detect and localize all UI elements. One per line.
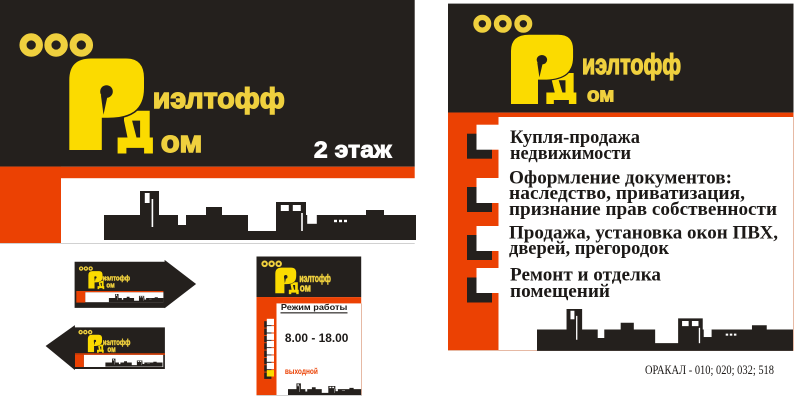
svg-text:признание прав собственности: признание прав собственности (509, 199, 777, 220)
svg-text:ом: ом (161, 124, 203, 159)
svg-text:ОРАКАЛ - 010; 020; 032; 518: ОРАКАЛ - 010; 020; 032; 518 (645, 362, 774, 377)
svg-text:недвижимости: недвижимости (510, 143, 631, 164)
svg-text:иэлтофф: иэлтофф (582, 49, 681, 81)
svg-text:ом: ом (587, 83, 614, 106)
svg-text:ом: ом (300, 283, 311, 295)
svg-text:2 этаж: 2 этаж (314, 136, 392, 162)
svg-text:ом: ом (106, 280, 114, 289)
svg-text:выходной: выходной (285, 367, 318, 376)
svg-text:дверей, прегородок: дверей, прегородок (509, 238, 669, 259)
svg-text:Режим работы: Режим работы (281, 302, 347, 312)
svg-text:помещений: помещений (510, 281, 610, 302)
svg-text:ом: ом (107, 345, 115, 354)
svg-text:иэлтофф: иэлтофф (153, 83, 285, 115)
svg-text:8.00 - 18.00: 8.00 - 18.00 (285, 331, 349, 345)
